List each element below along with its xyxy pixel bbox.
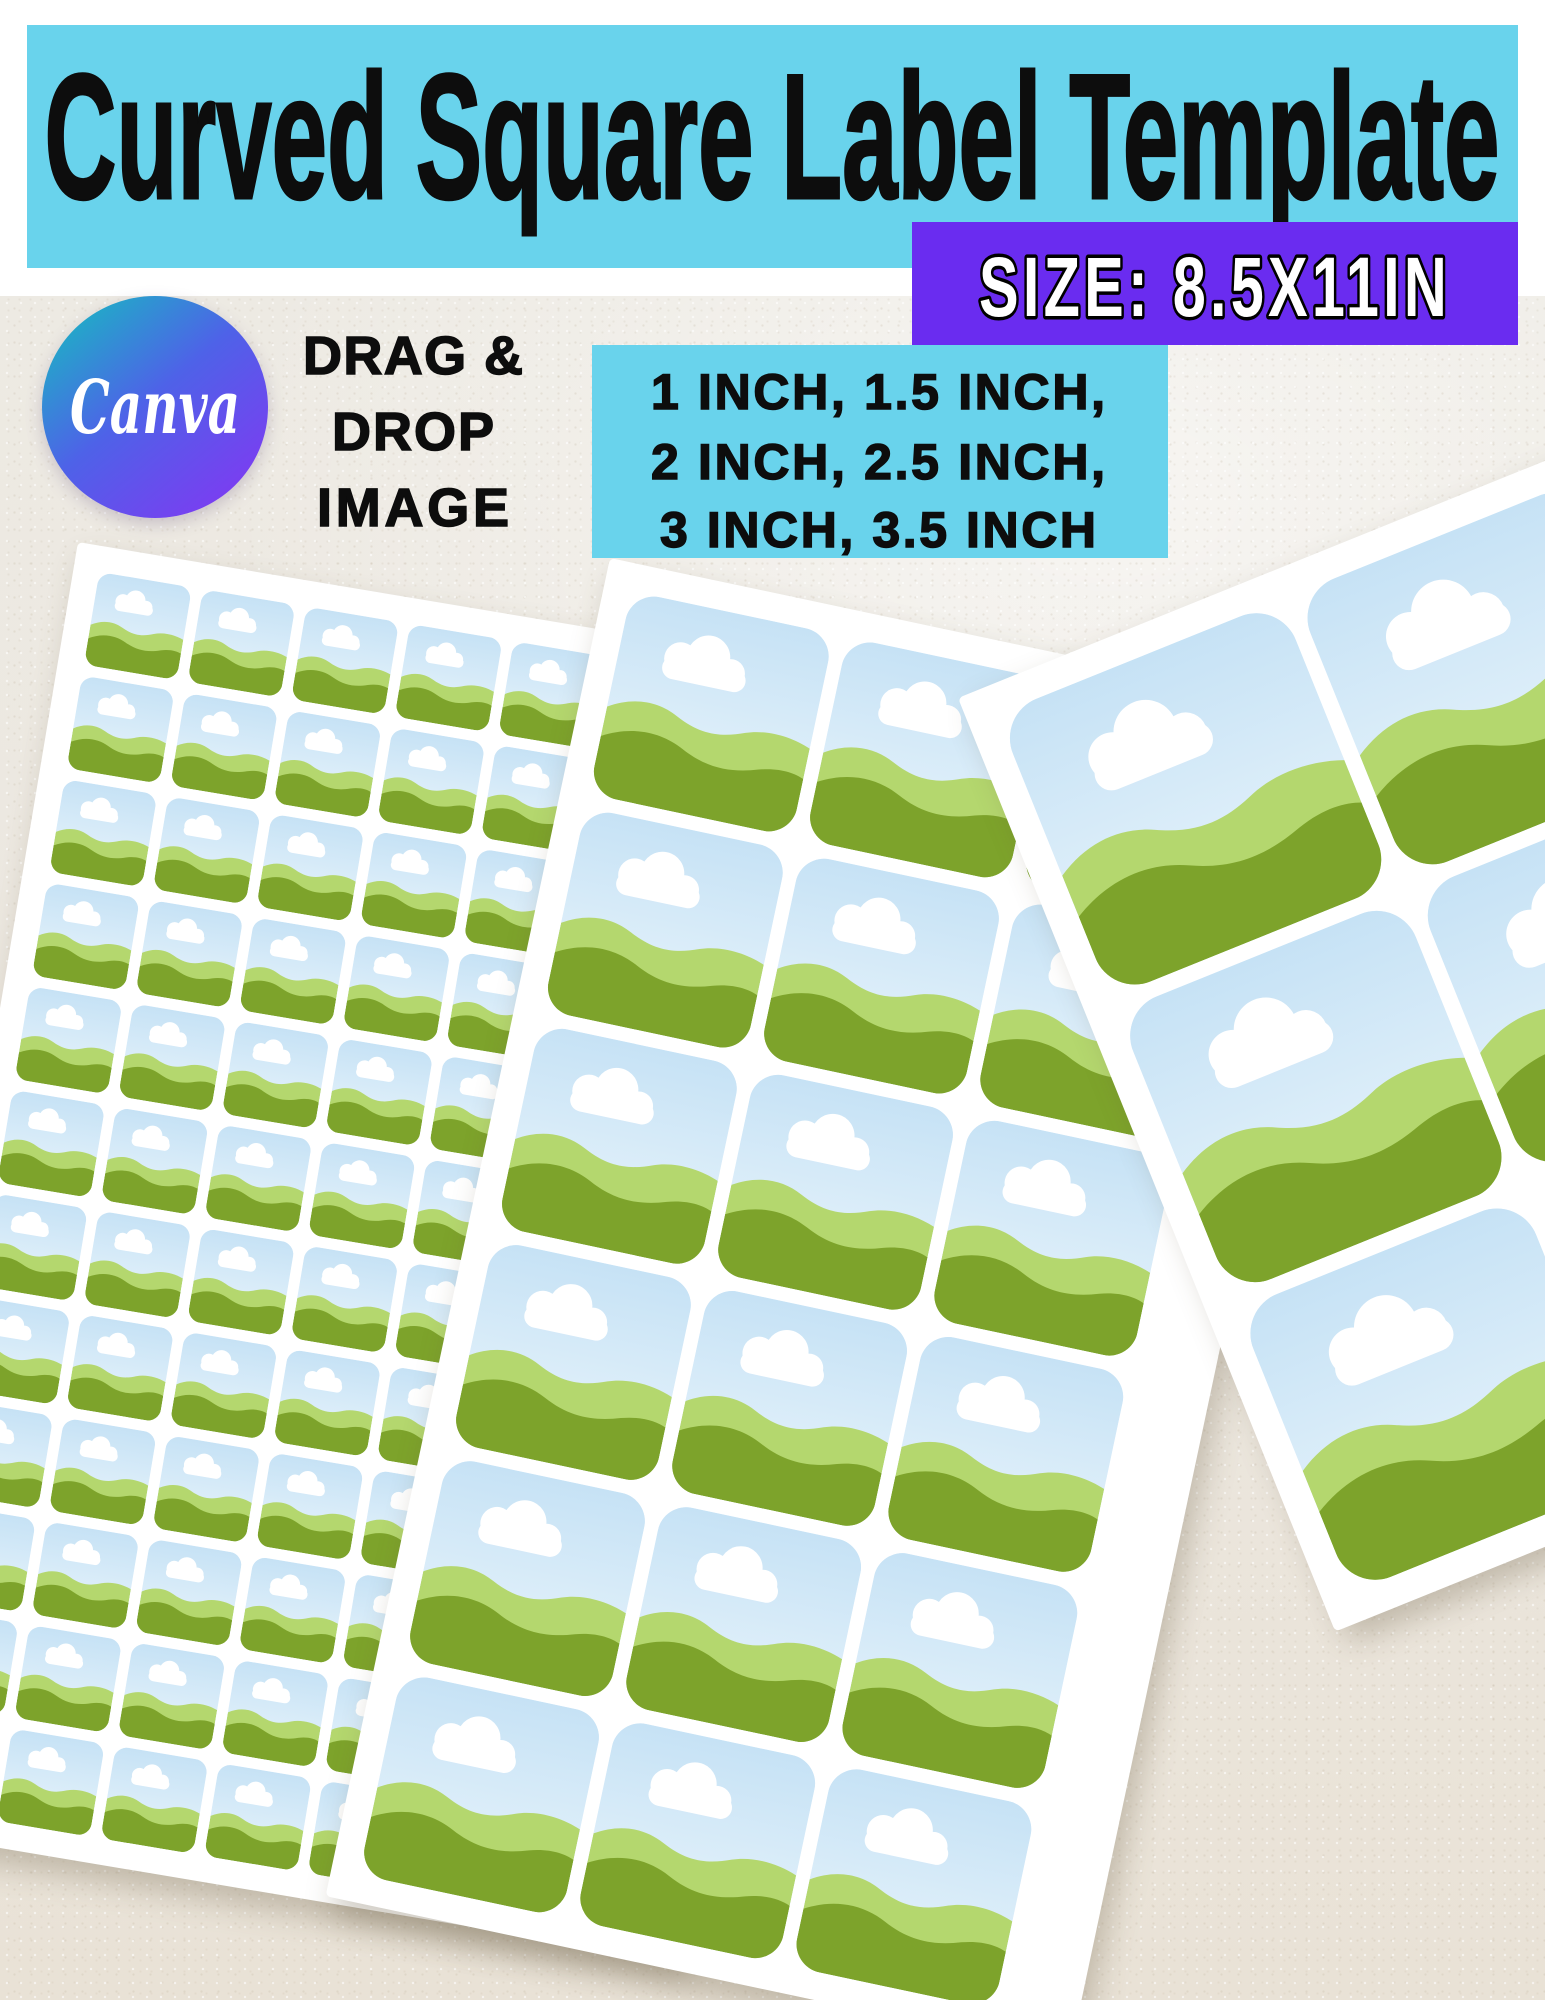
label-sticker bbox=[621, 1502, 867, 1748]
label-sticker bbox=[170, 1332, 278, 1440]
label-sticker bbox=[0, 1193, 88, 1301]
label-sticker bbox=[118, 1642, 226, 1750]
sizes-box-svg: 1 INCH, 1.5 INCH, 2 INCH, 2.5 INCH, 3 IN… bbox=[592, 345, 1168, 558]
label-sticker bbox=[222, 1021, 330, 1129]
label-sticker bbox=[837, 1548, 1083, 1794]
drag-drop-line2: DROP bbox=[332, 402, 502, 462]
label-sticker bbox=[31, 1521, 139, 1629]
label-sticker bbox=[135, 900, 243, 1008]
promo-image: Curved Square Label Template SIZE: 8.5X1… bbox=[0, 0, 1545, 2000]
label-sticker bbox=[273, 1349, 381, 1457]
label-sticker bbox=[135, 1539, 243, 1647]
label-sticker bbox=[83, 1211, 191, 1319]
canva-logo-svg: Canva bbox=[42, 296, 268, 518]
label-sticker bbox=[84, 572, 192, 680]
size-banner: SIZE: 8.5X11IN bbox=[912, 222, 1518, 345]
label-sticker bbox=[274, 710, 382, 818]
label-sticker bbox=[239, 917, 347, 1025]
label-sticker bbox=[343, 935, 451, 1043]
label-sticker bbox=[49, 1418, 157, 1526]
label-sticker bbox=[49, 779, 157, 887]
label-sticker bbox=[152, 1435, 260, 1543]
label-sticker bbox=[32, 883, 140, 991]
sizes-line1: 1 INCH, 1.5 INCH, bbox=[651, 364, 1109, 420]
label-sticker bbox=[359, 1672, 605, 1918]
label-sticker bbox=[589, 591, 835, 837]
sizes-line2: 2 INCH, 2.5 INCH, bbox=[651, 434, 1109, 490]
label-sticker bbox=[67, 675, 175, 783]
label-sticker bbox=[791, 1764, 1037, 2000]
label-sticker bbox=[15, 986, 123, 1094]
drag-drop-line1: DRAG & bbox=[303, 326, 531, 386]
label-sticker bbox=[451, 1240, 697, 1486]
label-sticker bbox=[0, 1504, 36, 1612]
label-sticker bbox=[575, 1718, 821, 1964]
label-sticker bbox=[0, 1728, 105, 1836]
label-sticker bbox=[187, 589, 295, 697]
label-sticker bbox=[187, 1228, 295, 1336]
label-sticker bbox=[100, 1746, 208, 1854]
label-sticker bbox=[0, 1297, 71, 1405]
label-sticker bbox=[405, 1456, 651, 1702]
label-sticker bbox=[395, 624, 503, 732]
page-title: Curved Square Label Template bbox=[45, 37, 1500, 236]
label-sticker bbox=[929, 1115, 1175, 1361]
label-sticker bbox=[221, 1660, 329, 1768]
label-sticker bbox=[204, 1124, 312, 1232]
drag-drop-svg: DRAG & DROP IMAGE bbox=[292, 322, 542, 552]
label-sticker bbox=[325, 1038, 433, 1146]
label-sticker bbox=[308, 1142, 416, 1250]
drag-drop-line3: IMAGE bbox=[317, 478, 517, 538]
label-sticker bbox=[543, 807, 789, 1053]
label-sticker bbox=[0, 1090, 105, 1198]
label-sticker bbox=[66, 1314, 174, 1422]
label-sticker bbox=[0, 1608, 19, 1716]
label-sticker bbox=[667, 1286, 913, 1532]
label-sticker bbox=[118, 1004, 226, 1112]
canva-wordmark: Canva bbox=[70, 365, 240, 451]
size-banner-text: SIZE: 8.5X11IN bbox=[979, 240, 1451, 334]
label-sticker bbox=[101, 1107, 209, 1215]
label-sticker bbox=[0, 1400, 53, 1508]
label-sticker bbox=[497, 1024, 743, 1270]
label-sticker bbox=[759, 853, 1005, 1099]
label-sticker bbox=[713, 1069, 959, 1315]
label-sticker bbox=[256, 1452, 364, 1560]
drag-drop-caption: DRAG & DROP IMAGE bbox=[292, 322, 542, 552]
label-sticker bbox=[204, 1763, 312, 1871]
sizes-box: 1 INCH, 1.5 INCH, 2 INCH, 2.5 INCH, 3 IN… bbox=[592, 345, 1168, 558]
label-sticker bbox=[239, 1556, 347, 1664]
label-sticker bbox=[360, 831, 468, 939]
label-sticker bbox=[14, 1625, 122, 1733]
label-sticker bbox=[153, 796, 261, 904]
label-sticker bbox=[291, 607, 399, 715]
label-sticker bbox=[377, 727, 485, 835]
label-sticker bbox=[291, 1245, 399, 1353]
label-sticker bbox=[883, 1332, 1129, 1578]
label-sticker bbox=[256, 814, 364, 922]
sizes-line3: 3 INCH, 3.5 INCH bbox=[660, 502, 1100, 558]
canva-logo: Canva bbox=[42, 296, 268, 518]
label-sticker bbox=[170, 693, 278, 801]
size-banner-svg: SIZE: 8.5X11IN bbox=[912, 222, 1518, 345]
